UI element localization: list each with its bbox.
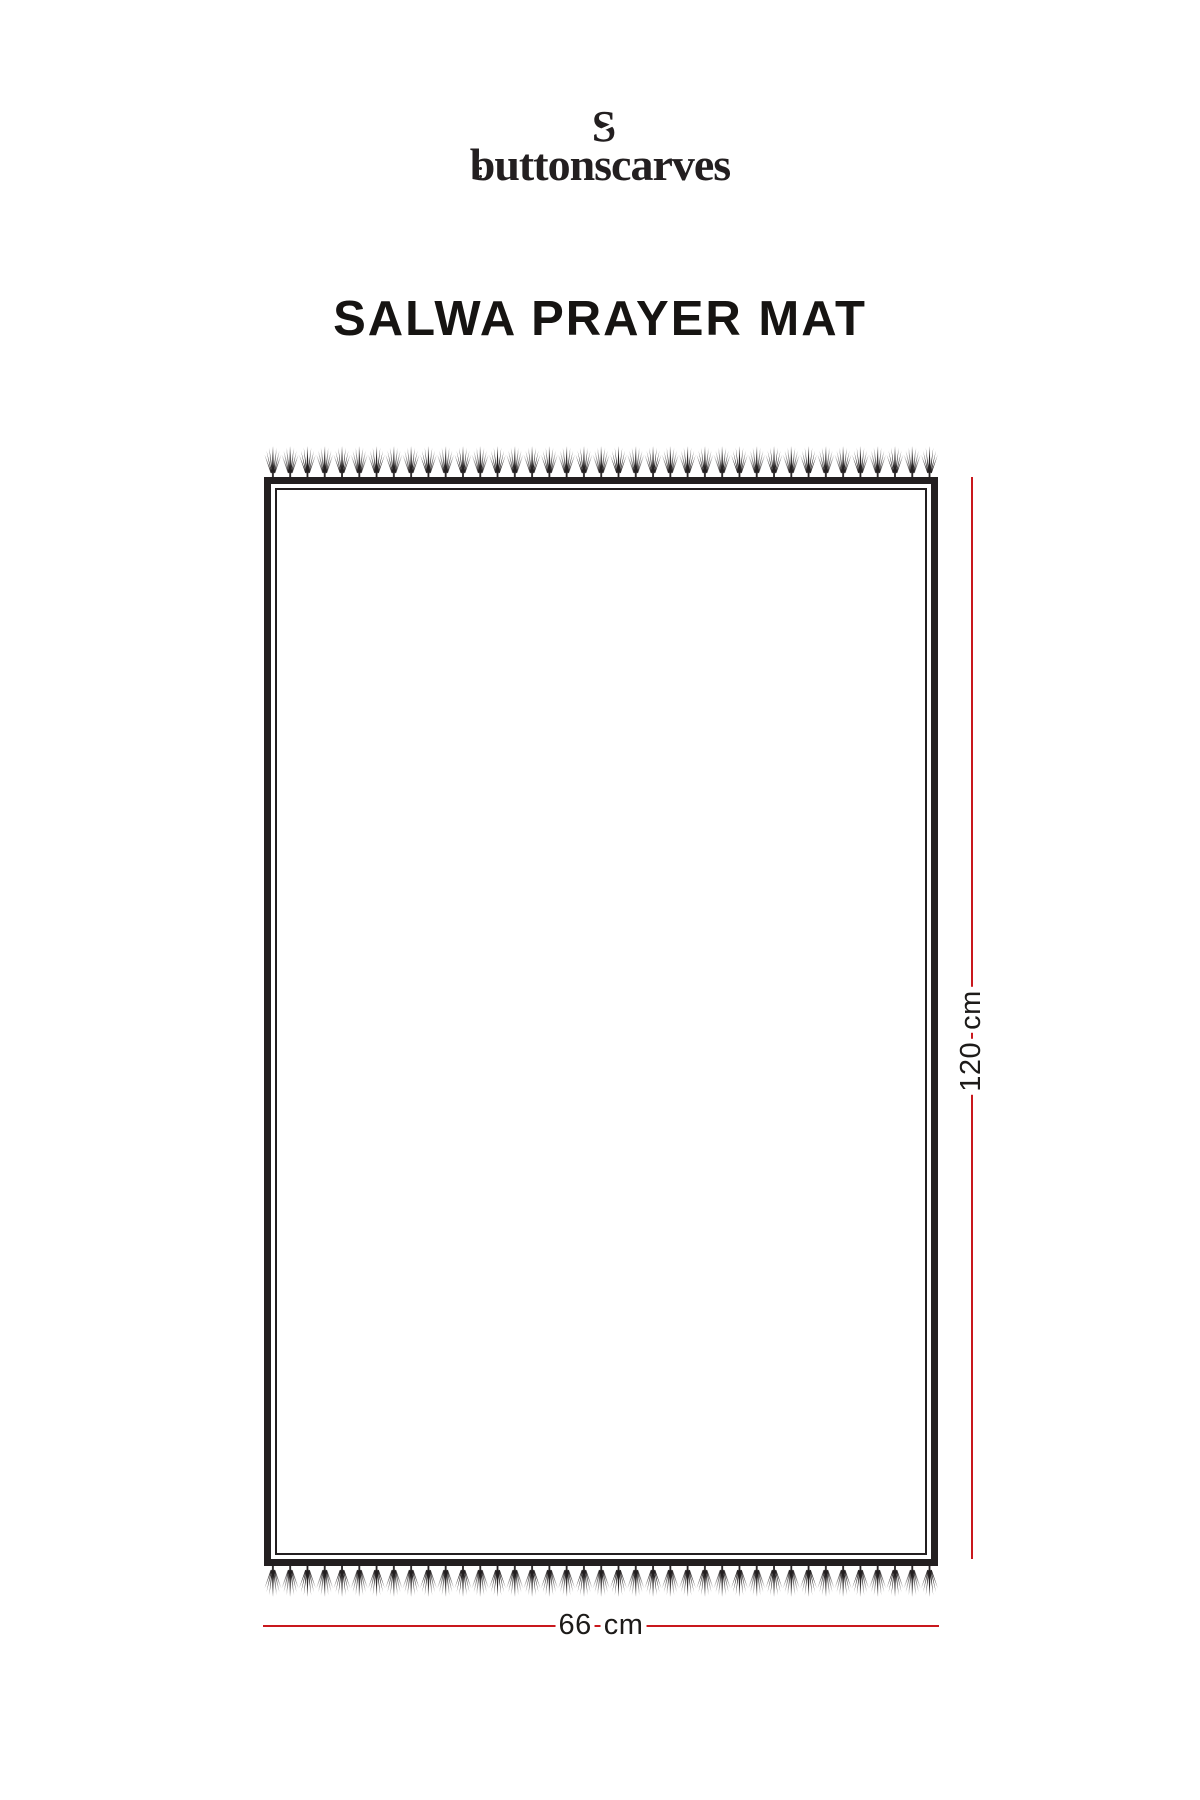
bottom-fringe-tassels: [264, 1566, 938, 1597]
top-fringe-tassels: [264, 446, 938, 477]
page-title: SALWA PRAYER MAT: [0, 291, 1200, 347]
width-value: 66: [556, 1609, 595, 1643]
height-dimension-label: 120 cm: [955, 987, 989, 1095]
height-unit: cm: [955, 987, 989, 1033]
brand-logo: S buttonscarves: [0, 142, 1200, 188]
button-holes-icon: [479, 167, 492, 180]
mat-inner-border: [275, 488, 927, 1555]
top-fringe: [264, 446, 938, 477]
bottom-fringe: [264, 1566, 938, 1597]
width-dimension-label: 66 cm: [556, 1609, 647, 1643]
width-unit: cm: [601, 1609, 647, 1643]
brand-monogram: S: [592, 105, 616, 149]
mat-outline: [264, 477, 938, 1566]
height-value: 120: [955, 1039, 989, 1095]
brand-logo-lockup: S buttonscarves: [470, 142, 730, 188]
